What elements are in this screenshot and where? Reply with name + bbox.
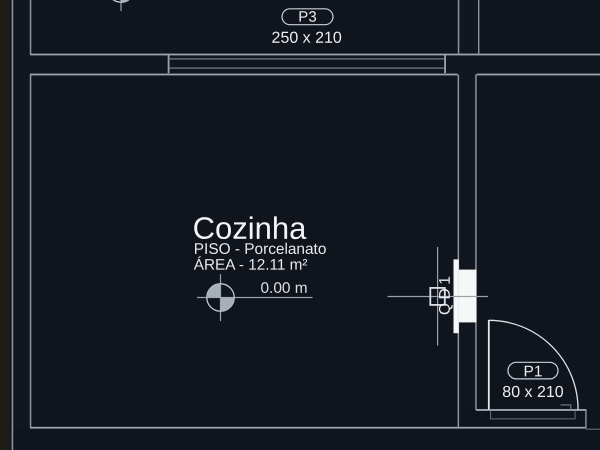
- svg-text:PISO - Porcelanato: PISO - Porcelanato: [194, 241, 327, 258]
- svg-text:P3: P3: [298, 9, 316, 26]
- svg-text:80 x 210: 80 x 210: [502, 384, 563, 401]
- svg-text:P1: P1: [524, 363, 543, 380]
- svg-text:250 x 210: 250 x 210: [272, 30, 342, 47]
- svg-text:QD1: QD1: [437, 273, 454, 315]
- svg-text:ÁREA - 12.11 m²: ÁREA - 12.11 m²: [194, 257, 308, 274]
- svg-text:0.00 m: 0.00 m: [260, 280, 307, 297]
